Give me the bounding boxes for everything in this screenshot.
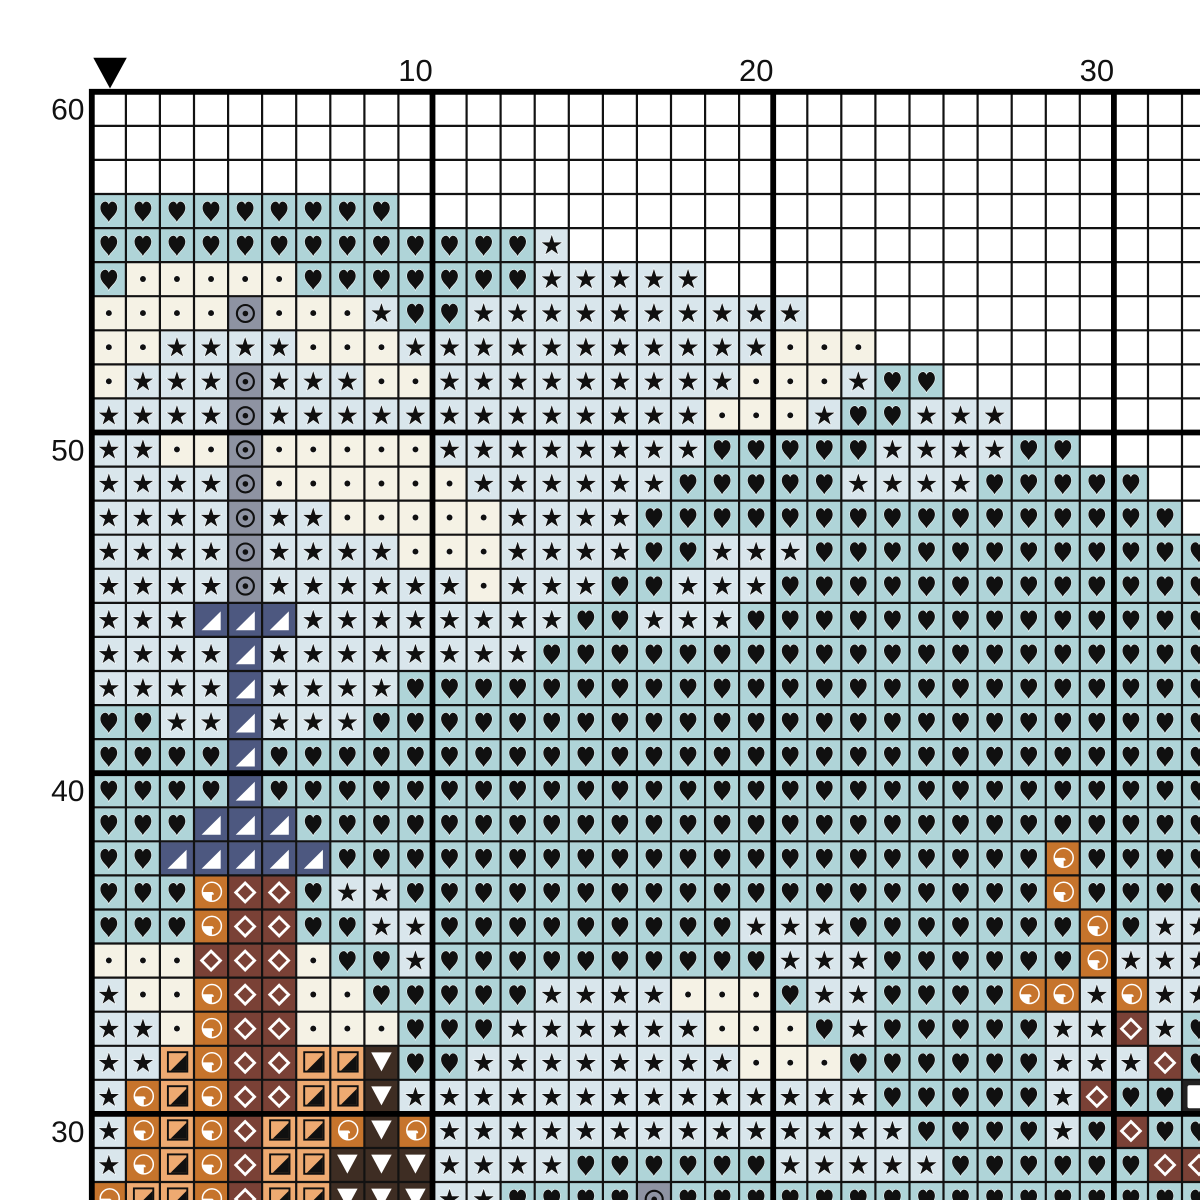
- svg-text:10: 10: [398, 53, 432, 88]
- svg-text:30: 30: [51, 1116, 84, 1149]
- svg-text:40: 40: [51, 775, 84, 808]
- svg-text:30: 30: [1080, 53, 1114, 88]
- svg-text:50: 50: [51, 434, 84, 467]
- svg-text:20: 20: [739, 53, 773, 88]
- svg-text:60: 60: [51, 94, 84, 127]
